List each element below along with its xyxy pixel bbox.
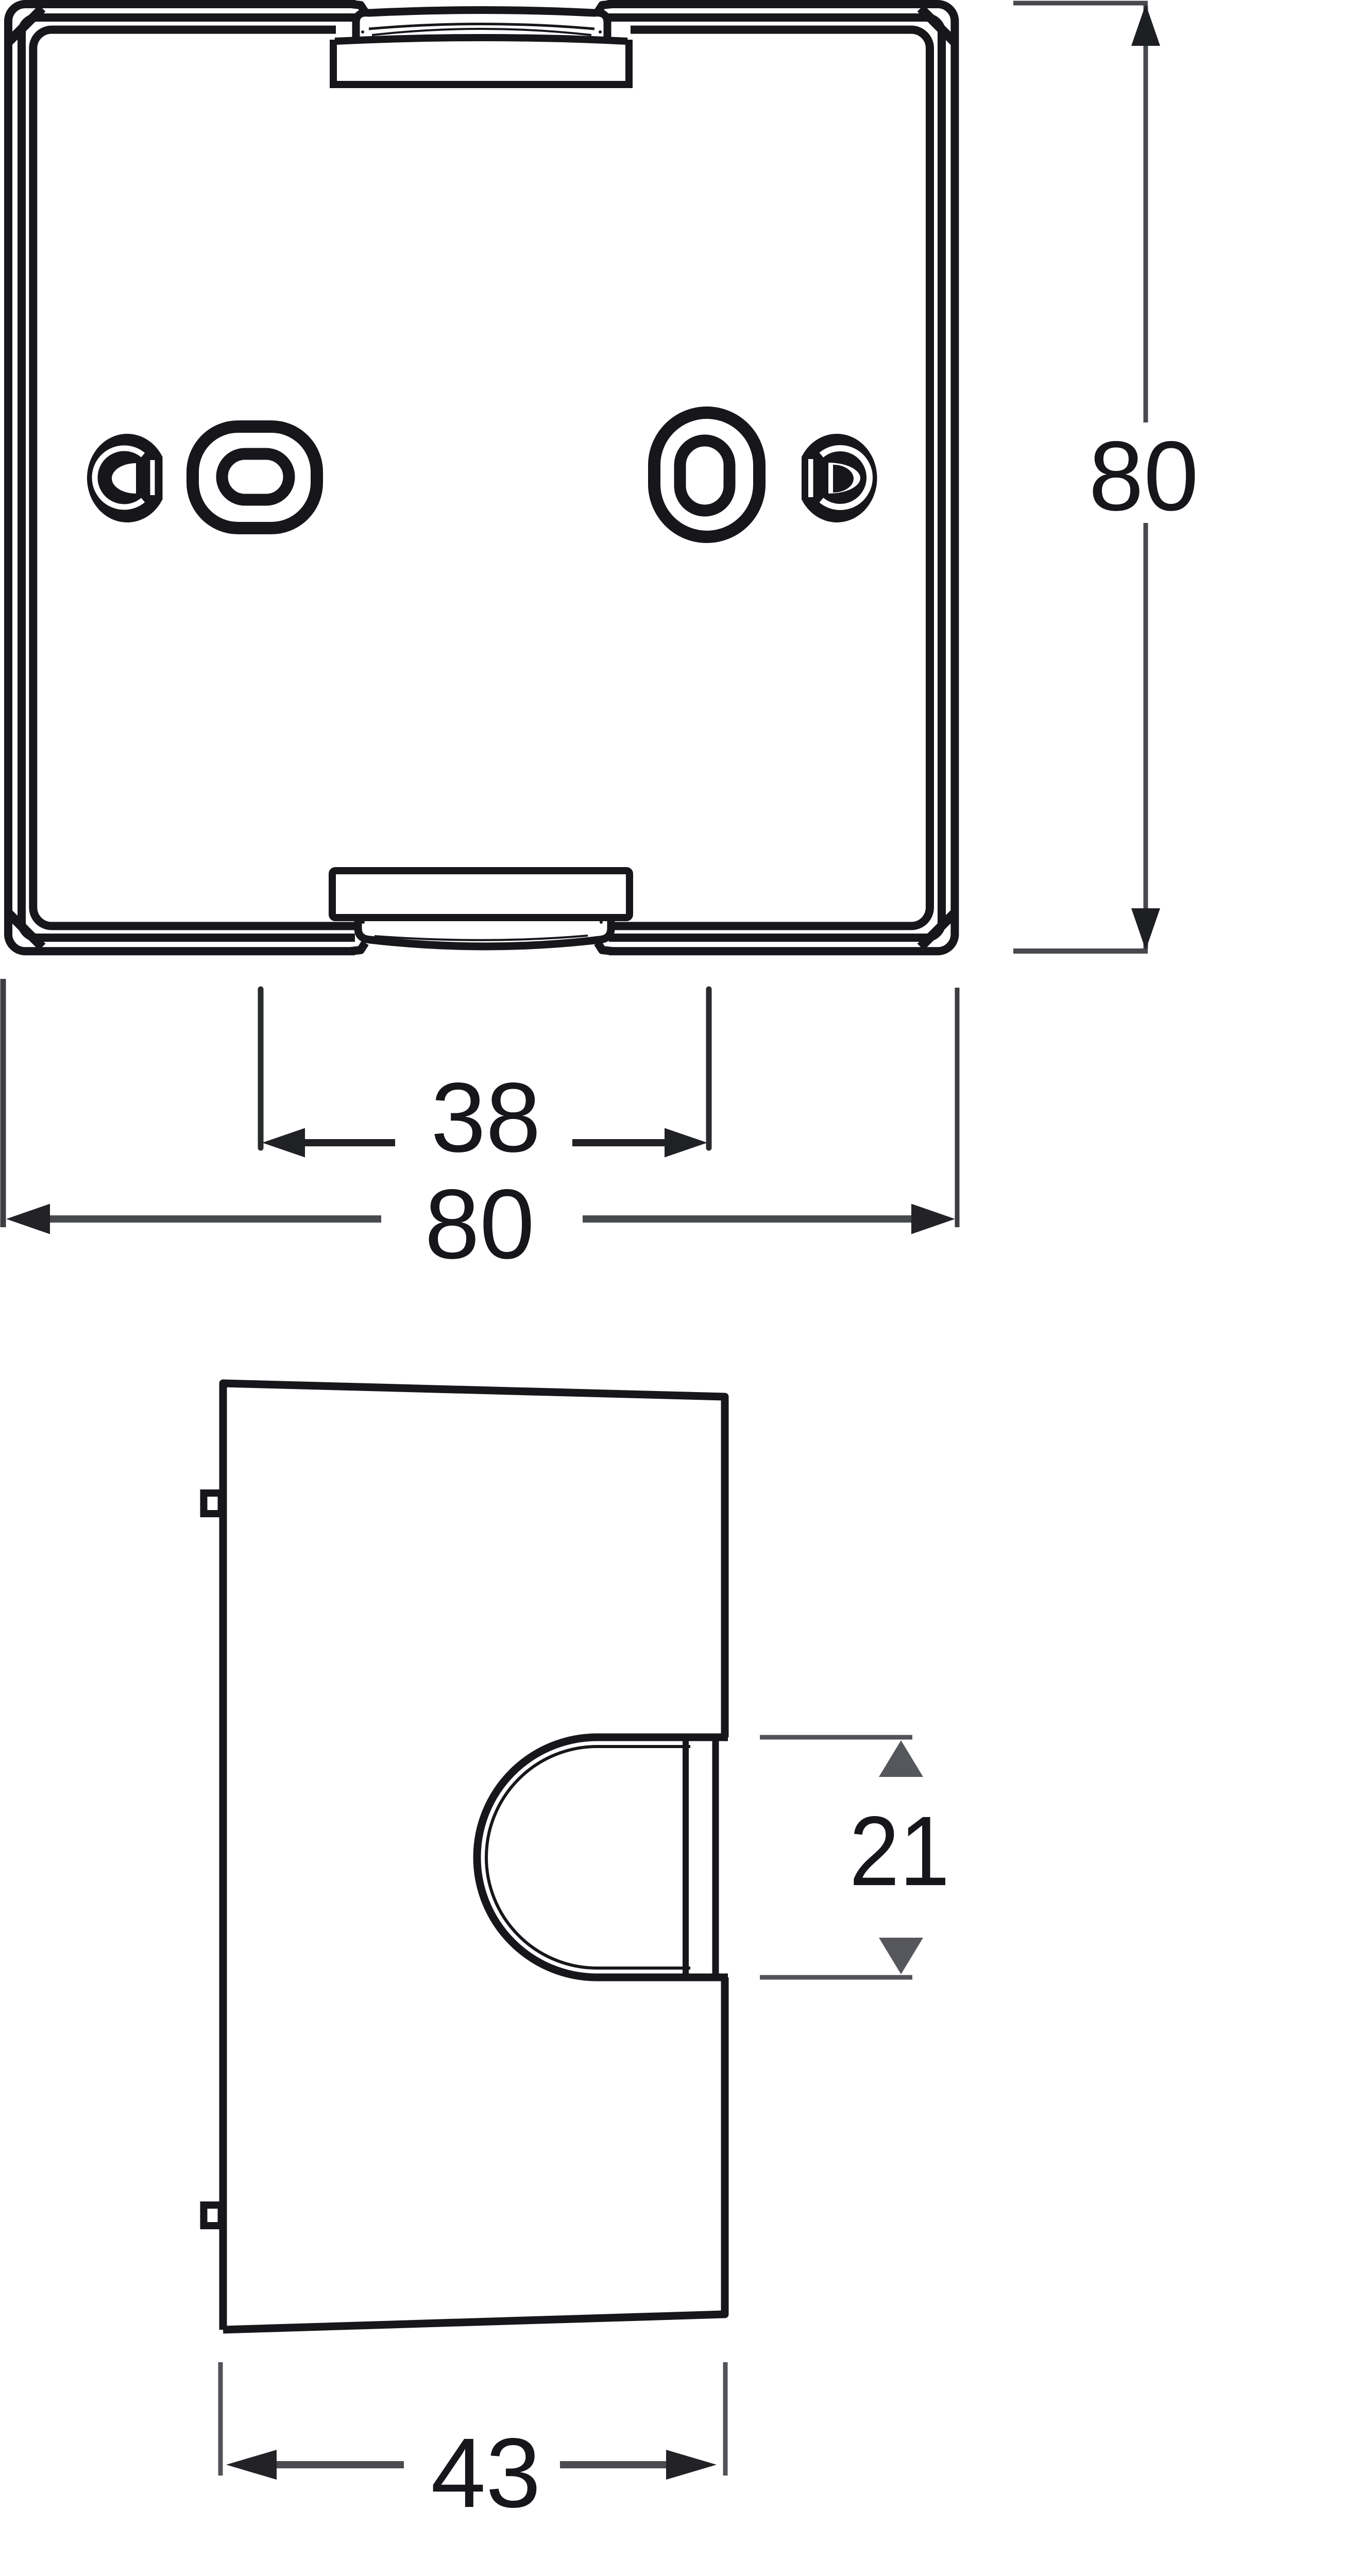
- svg-text:43: 43: [431, 2417, 541, 2528]
- svg-text:38: 38: [431, 1062, 541, 1173]
- svg-text:21: 21: [849, 1795, 950, 1906]
- svg-text:80: 80: [424, 1168, 535, 1279]
- svg-text:80: 80: [1089, 420, 1199, 531]
